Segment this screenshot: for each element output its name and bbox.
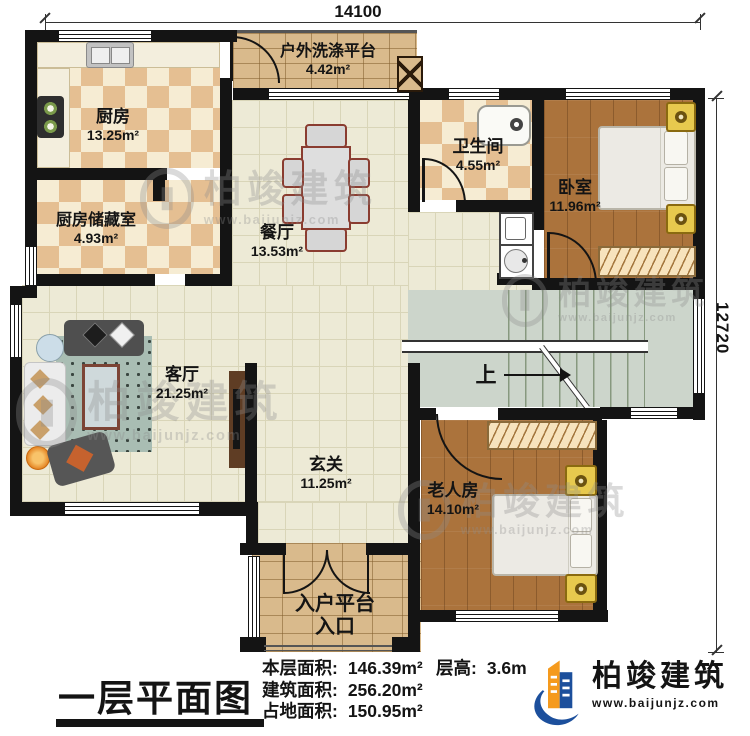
sink-basin xyxy=(111,47,130,64)
floor-height-label: 层高: xyxy=(436,658,477,680)
room-label-kitchen-storage: 厨房储藏室 4.93m² xyxy=(56,212,136,246)
dimension-line-top xyxy=(45,22,701,23)
window xyxy=(448,88,500,100)
room-area: 14.10m² xyxy=(427,501,479,517)
dimension-label-right: 12720 xyxy=(712,302,732,354)
room-label-dining: 餐厅 13.53m² xyxy=(251,223,303,259)
door-leaf xyxy=(283,550,285,594)
wall xyxy=(408,100,420,212)
wardrobe xyxy=(487,421,597,450)
burner xyxy=(43,119,58,134)
dimension-label-top: 14100 xyxy=(334,2,381,22)
washing-machine xyxy=(499,212,534,246)
room-name: 老人房 xyxy=(427,481,479,501)
room-area: 4.93m² xyxy=(56,230,136,246)
basin-tap xyxy=(522,258,527,263)
window xyxy=(25,246,37,286)
room-area: 11.96m² xyxy=(549,198,600,214)
brand-block: 柏竣建筑 www.baijunjz.com xyxy=(592,662,728,710)
door-leaf xyxy=(230,36,233,81)
blanket-line xyxy=(660,128,661,208)
coffee-table xyxy=(82,364,120,430)
room-sub-label: 入口 xyxy=(295,616,375,639)
room-name: 卧室 xyxy=(549,178,600,198)
stats-block: 本层面积: 146.39m² 建筑面积: 256.20m² 占地面积: 150.… xyxy=(262,658,423,723)
room-area: 13.25m² xyxy=(87,127,139,143)
room-name: 厨房储藏室 xyxy=(56,212,136,230)
lamp xyxy=(575,475,587,487)
dining-chair xyxy=(305,124,347,148)
stair-treads-upper xyxy=(508,290,645,341)
window xyxy=(565,88,671,100)
lamp xyxy=(675,111,687,123)
wall xyxy=(220,78,232,274)
brand-logo-icon xyxy=(528,656,586,728)
room-label-kitchen: 厨房 13.25m² xyxy=(87,107,139,143)
door-leaf xyxy=(367,550,369,594)
room-area: 13.53m² xyxy=(251,243,303,259)
wall xyxy=(408,543,420,643)
room-name: 厨房 xyxy=(87,107,139,127)
stair-handrail xyxy=(402,340,648,353)
cushion xyxy=(66,445,93,472)
stair-arrow-icon xyxy=(560,368,571,382)
stat-row: 本层面积: 146.39m² xyxy=(262,658,423,680)
wardrobe xyxy=(598,246,696,277)
wall xyxy=(498,408,602,420)
wall xyxy=(185,274,232,286)
brand-url: www.baijunjz.com xyxy=(592,696,728,710)
window xyxy=(58,30,152,42)
room-label-outdoor-wash: 户外洗涤平台 4.42m² xyxy=(280,43,376,77)
wall xyxy=(392,637,420,652)
tub-drain xyxy=(510,118,523,131)
tv xyxy=(233,389,240,449)
pillow xyxy=(664,131,688,165)
room-name: 入户平台 xyxy=(295,593,375,616)
nightstand xyxy=(565,465,597,496)
column-marker xyxy=(397,56,423,92)
window xyxy=(693,298,705,394)
entry-step-line xyxy=(264,645,392,647)
wash-basin xyxy=(499,244,534,279)
room-label-entry-platform: 入户平台 入口 xyxy=(295,593,375,639)
kitchen-sink xyxy=(86,42,134,68)
nightstand xyxy=(666,102,696,132)
room-area: 11.25m² xyxy=(300,475,351,491)
dining-chair xyxy=(348,194,370,224)
room-name: 玄关 xyxy=(300,455,351,475)
stat-value: 146.39m² xyxy=(348,658,423,680)
stat-label: 本层面积: xyxy=(262,658,338,680)
wall xyxy=(25,168,167,180)
floor-plan: 上 xyxy=(0,0,750,736)
floor-height-value: 3.6m xyxy=(487,658,527,680)
stat-value: 150.95m² xyxy=(348,701,423,723)
wall xyxy=(532,100,544,230)
page-title: 一层平面图 xyxy=(58,668,253,722)
room-label-elder-room: 老人房 14.10m² xyxy=(427,481,479,517)
room-name: 户外洗涤平台 xyxy=(280,43,376,61)
side-table xyxy=(36,334,64,362)
wall xyxy=(233,88,270,100)
wall xyxy=(240,543,286,555)
dining-chair xyxy=(348,158,370,188)
dining-table xyxy=(301,146,351,230)
room-area: 4.55m² xyxy=(453,157,504,173)
room-name: 客厅 xyxy=(156,365,208,385)
room-area: 21.25m² xyxy=(156,385,208,401)
dimension-tick xyxy=(711,644,722,655)
pillow xyxy=(570,534,592,568)
dining-chair xyxy=(282,158,304,188)
entry-step-line xyxy=(264,650,392,651)
dimension-tick xyxy=(711,90,722,101)
title-underline xyxy=(56,719,264,727)
dining-chair xyxy=(282,194,304,224)
window xyxy=(455,610,559,622)
pillow xyxy=(570,498,592,532)
dimension-line-right xyxy=(716,98,717,653)
room-label-living: 客厅 21.25m² xyxy=(156,365,208,401)
window xyxy=(630,407,678,419)
window xyxy=(248,556,260,638)
wall xyxy=(153,168,165,201)
blanket-line xyxy=(568,496,569,574)
nightstand xyxy=(666,204,696,234)
stat-row: 占地面积: 150.95m² xyxy=(262,701,423,723)
dining-chair xyxy=(305,228,347,252)
floor-height: 层高: 3.6m xyxy=(436,658,527,680)
stove xyxy=(37,96,64,138)
room-label-bedroom: 卧室 11.96m² xyxy=(549,178,600,214)
foyer-lower-floor xyxy=(258,502,408,543)
wall xyxy=(456,200,532,212)
lamp xyxy=(675,213,687,225)
door-leaf xyxy=(422,158,425,202)
brand-name: 柏竣建筑 xyxy=(592,662,728,692)
room-name: 餐厅 xyxy=(251,223,303,243)
lamp xyxy=(575,583,587,595)
window xyxy=(268,88,410,100)
wall xyxy=(245,363,257,502)
stair-up-label: 上 xyxy=(476,359,497,389)
pillow xyxy=(664,167,688,201)
room-name: 卫生间 xyxy=(453,137,504,157)
stat-value: 256.20m² xyxy=(348,680,423,702)
door-leaf xyxy=(547,232,550,282)
platform-edge xyxy=(233,30,417,33)
wall xyxy=(25,274,155,286)
wall xyxy=(420,408,436,420)
nightstand xyxy=(565,574,597,603)
washer-door xyxy=(505,217,526,240)
window xyxy=(10,304,22,358)
stat-label: 占地面积: xyxy=(262,701,338,723)
sink-basin xyxy=(91,47,110,64)
room-label-bathroom: 卫生间 4.55m² xyxy=(453,137,504,173)
wall xyxy=(240,637,266,652)
stat-row: 建筑面积: 256.20m² xyxy=(262,680,423,702)
stair-direction-line xyxy=(504,374,562,376)
window xyxy=(64,502,200,516)
room-area: 4.42m² xyxy=(280,61,376,77)
room-label-foyer: 玄关 11.25m² xyxy=(300,455,351,491)
stat-label: 建筑面积: xyxy=(262,680,338,702)
burner xyxy=(43,101,58,116)
